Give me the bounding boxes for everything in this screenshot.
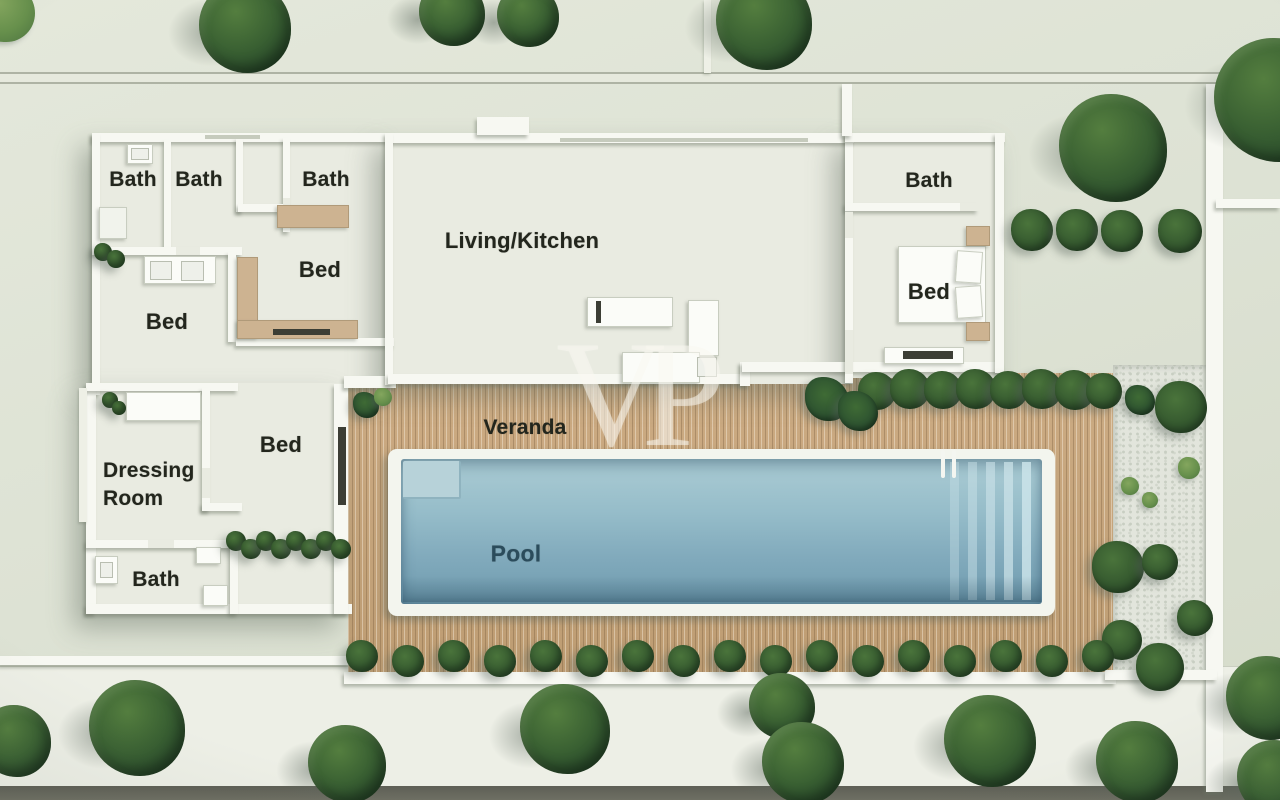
room-label-bath-3: Bath	[302, 168, 349, 192]
wall	[842, 84, 852, 136]
shelf	[277, 205, 349, 228]
top-road	[0, 72, 1280, 84]
shrub	[0, 0, 35, 42]
door-opening	[176, 247, 200, 255]
plant-garland	[331, 539, 351, 559]
tree	[520, 684, 610, 774]
watermark: VP	[556, 318, 702, 470]
cabinet	[203, 585, 228, 606]
wall	[845, 133, 1005, 142]
hedge-bush	[438, 640, 470, 672]
room-label-bed-middle: Bed	[299, 257, 341, 283]
tree	[1096, 721, 1178, 800]
room-label-bath-lower: Bath	[132, 568, 179, 592]
bush	[1136, 643, 1184, 691]
tree	[944, 695, 1036, 787]
wall	[86, 383, 238, 391]
bush	[1092, 541, 1144, 593]
hedge-bush	[346, 640, 378, 672]
hedge-bush	[990, 640, 1022, 672]
shower	[99, 207, 127, 239]
sideboard	[338, 427, 346, 505]
wall	[1216, 199, 1280, 208]
room-label-bath-2: Bath	[175, 168, 222, 192]
tv-console	[273, 329, 330, 335]
wall	[230, 540, 238, 614]
hedge-bush	[944, 645, 976, 677]
hedge-bush	[392, 645, 424, 677]
fern-plant	[1178, 457, 1200, 479]
sink-basin	[100, 562, 113, 578]
sink	[150, 261, 172, 280]
room-label-bed-lower: Bed	[260, 432, 302, 458]
door-opening	[845, 212, 853, 238]
pillow	[955, 285, 983, 319]
sink	[181, 261, 204, 281]
tree	[308, 725, 386, 800]
bush	[1011, 209, 1053, 251]
hedge-bush	[484, 645, 516, 677]
pool-deep-end-shade	[403, 576, 1041, 602]
wall	[477, 117, 529, 135]
hedge-bush	[530, 640, 562, 672]
wall	[344, 672, 1116, 684]
room-label-bed-left: Bed	[146, 309, 188, 335]
bush	[1177, 600, 1213, 636]
pool-ladder	[952, 450, 956, 478]
hedge-bush	[852, 645, 884, 677]
hedge-bush	[622, 640, 654, 672]
bush	[1158, 209, 1202, 253]
wall	[202, 503, 242, 511]
tree	[1059, 94, 1167, 202]
tree	[762, 722, 844, 800]
dresser-top	[903, 351, 953, 359]
room-label-living-kitchen: Living/Kitchen	[445, 228, 599, 254]
wall	[164, 140, 171, 250]
wall	[0, 656, 350, 665]
wall	[79, 388, 87, 522]
fern-plant	[374, 388, 392, 406]
wall	[236, 338, 394, 346]
hedge-bush	[668, 645, 700, 677]
wall	[236, 138, 243, 212]
wall	[845, 203, 978, 211]
wall	[995, 133, 1004, 373]
hedge-bush	[1082, 640, 1114, 672]
window	[560, 138, 808, 142]
toilet-seat	[131, 148, 149, 160]
bush	[1056, 209, 1098, 251]
pool-step-platform	[403, 461, 461, 499]
wardrobe	[126, 392, 201, 421]
bush	[1155, 381, 1207, 433]
wall	[92, 133, 100, 395]
nightstand	[966, 226, 990, 246]
pool-ladder	[941, 450, 945, 478]
area-label-pool: Pool	[491, 541, 542, 568]
area-label-veranda: Veranda	[483, 416, 566, 440]
hedge-bush	[714, 640, 746, 672]
wall	[385, 133, 393, 385]
bush	[1086, 373, 1122, 409]
window	[205, 135, 260, 139]
room-label-bed-right: Bed	[908, 279, 950, 305]
nightstand	[966, 322, 990, 341]
room-label-dressing-room: Dressing Room	[103, 457, 205, 513]
room-label-bath-right: Bath	[905, 169, 952, 193]
wall	[228, 252, 236, 342]
toilet	[196, 547, 221, 564]
pillow	[955, 250, 983, 284]
fern-plant	[1121, 477, 1139, 495]
bush	[112, 401, 126, 415]
fern-plant	[1142, 492, 1158, 508]
bush	[1101, 210, 1143, 252]
door-opening	[960, 203, 980, 211]
hedge-bush	[576, 645, 608, 677]
bush	[1142, 544, 1178, 580]
tree	[89, 680, 185, 776]
door-opening	[148, 540, 174, 548]
door-opening	[845, 330, 853, 374]
hedge-bush	[806, 640, 838, 672]
bush	[107, 250, 125, 268]
hedge-bush	[1036, 645, 1068, 677]
floor-plan: Bath Bath Bath Bed Bed Living/Kitchen Ba…	[0, 0, 1280, 800]
hedge-bush	[898, 640, 930, 672]
room-label-bath-1: Bath	[109, 168, 156, 192]
